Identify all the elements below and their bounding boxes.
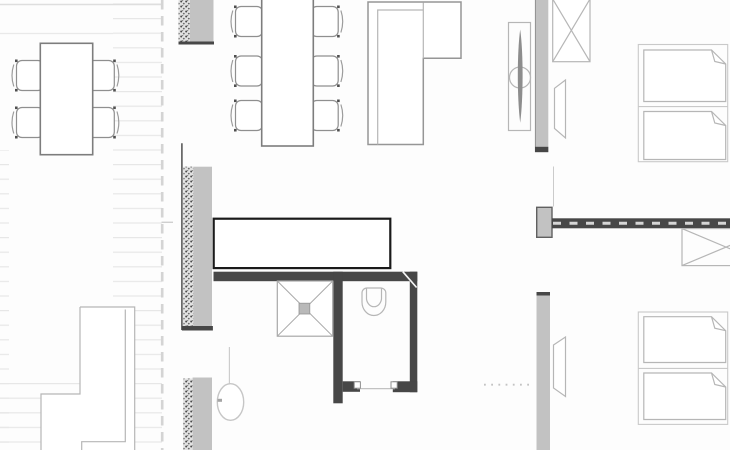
bed — [644, 112, 726, 160]
kitchen-counter — [368, 2, 461, 145]
long-table-set — [231, 0, 343, 146]
bathroom — [214, 272, 418, 404]
table-chair — [231, 55, 264, 87]
table-chair — [231, 100, 264, 132]
dining-table — [40, 43, 92, 154]
bed — [644, 373, 726, 420]
toilet — [362, 288, 386, 316]
shower-tray — [277, 281, 332, 336]
selection-rectangle[interactable] — [214, 219, 391, 268]
radiator-fixture — [509, 23, 531, 131]
floor-plan-canvas — [0, 0, 730, 450]
door-post — [354, 382, 360, 388]
bed-group-bottom — [638, 312, 727, 424]
long-table — [262, 0, 314, 146]
wall-strip-bottom-right — [537, 292, 551, 450]
shower-drain — [299, 303, 310, 314]
bathroom-wall-left — [333, 272, 342, 404]
table-chair — [310, 6, 343, 38]
door-post — [391, 382, 397, 388]
insulated-wall-segment-bottom — [183, 378, 212, 450]
bed — [644, 317, 726, 363]
table-chair — [310, 100, 343, 132]
table-chair — [310, 55, 343, 87]
wall-niche-panel-top — [555, 80, 566, 138]
wall-pier — [537, 207, 552, 237]
crossed-rectangle-desk — [682, 229, 730, 266]
radiator-blade — [518, 30, 523, 123]
insulated-wall-segment-top — [179, 0, 215, 45]
bathroom-wall-top — [214, 272, 418, 282]
table-chair — [231, 6, 264, 38]
heater-mark — [218, 399, 223, 402]
water-heater-circle — [217, 347, 243, 420]
bed-group-top — [638, 45, 727, 162]
partition-wall-dashed — [537, 207, 730, 237]
dining-table-set — [12, 43, 119, 154]
bathroom-wall-right — [410, 272, 418, 393]
wall-niche-panel-bottom — [554, 337, 566, 397]
wall-strip-top-right — [535, 0, 548, 152]
insulated-wall-segment-middle — [182, 143, 213, 330]
boundary-dashed-line — [162, 0, 174, 450]
bed — [644, 50, 726, 102]
shaft-box-crossed — [553, 0, 590, 62]
